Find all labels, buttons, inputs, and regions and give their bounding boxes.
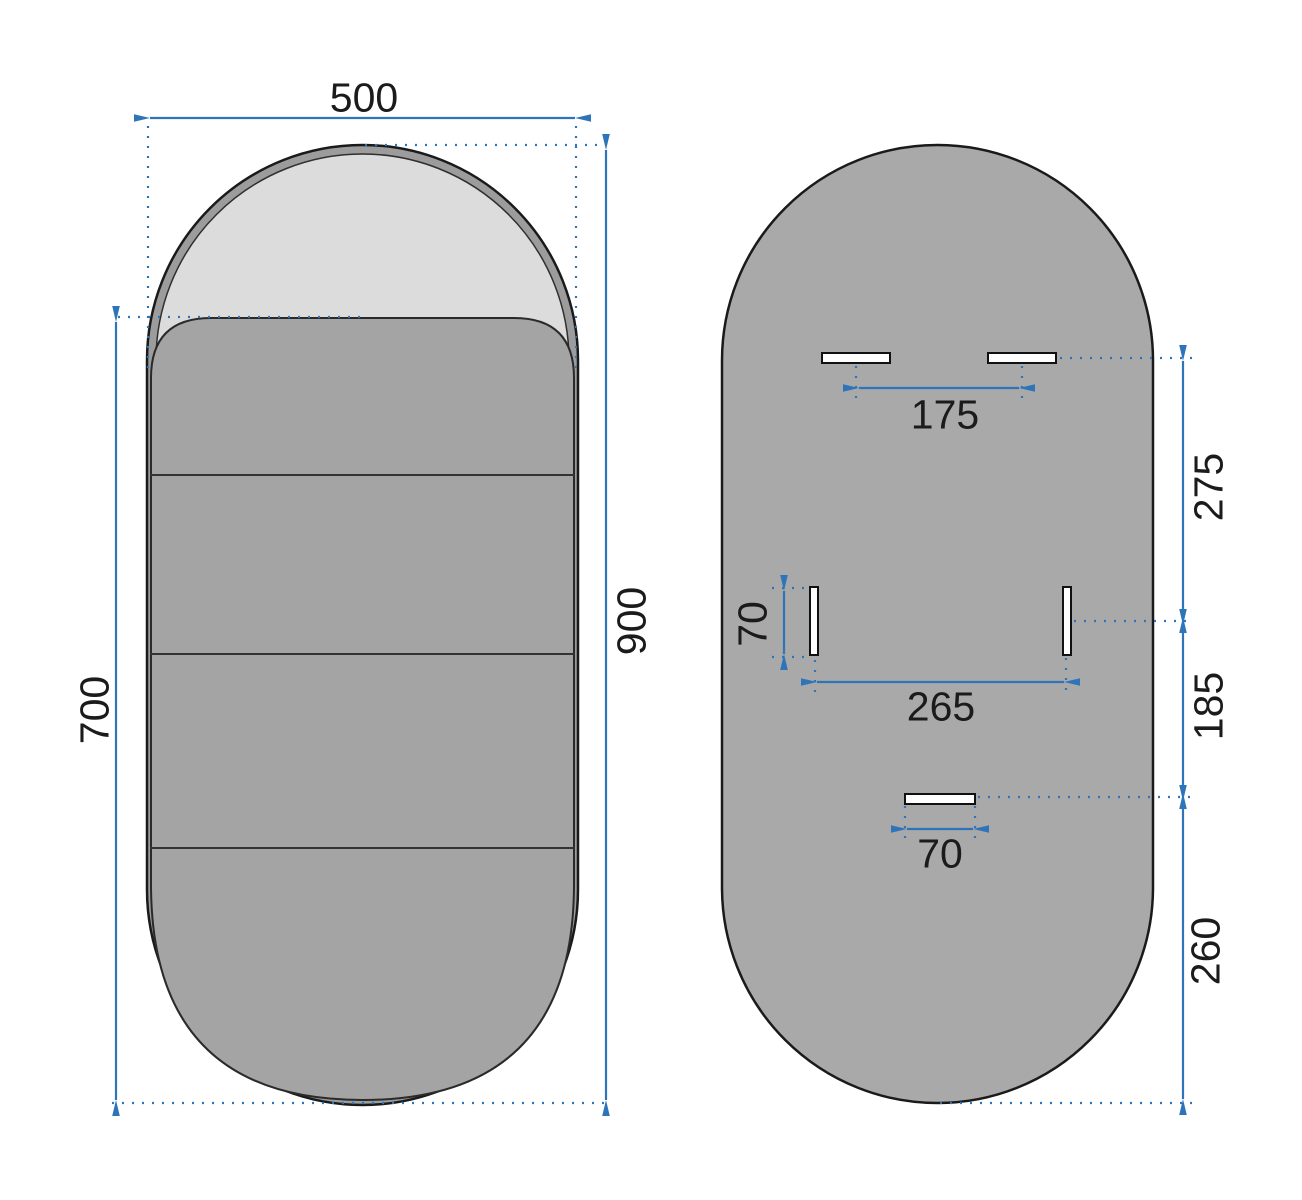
technical-drawing-canvas: 500 900 700 xyxy=(0,0,1302,1200)
front-panel-height-label: 700 xyxy=(71,676,117,744)
side-right-mounting-slot xyxy=(1063,587,1071,655)
side-to-bottom-offset-label: 185 xyxy=(1185,672,1231,740)
side-left-mounting-slot xyxy=(810,587,818,655)
side-slots-spacing-label: 265 xyxy=(907,683,975,729)
bottom-offset-label: 260 xyxy=(1182,917,1228,985)
top-right-mounting-slot xyxy=(988,353,1056,363)
top-to-side-offset-label: 275 xyxy=(1185,453,1231,521)
back-view xyxy=(722,145,1153,1103)
top-slots-spacing-label: 175 xyxy=(911,391,979,437)
front-total-height-label: 900 xyxy=(608,587,654,655)
front-width-label: 500 xyxy=(330,74,398,120)
front-view xyxy=(147,145,578,1105)
bottom-mounting-slot xyxy=(905,794,975,804)
back-body xyxy=(722,145,1153,1103)
mirror-dimension-diagram: 500 900 700 xyxy=(0,0,1302,1200)
front-panel xyxy=(151,318,574,1100)
bottom-slot-width-label: 70 xyxy=(917,830,963,876)
side-slot-length-label: 70 xyxy=(729,601,775,647)
top-left-mounting-slot xyxy=(822,353,890,363)
